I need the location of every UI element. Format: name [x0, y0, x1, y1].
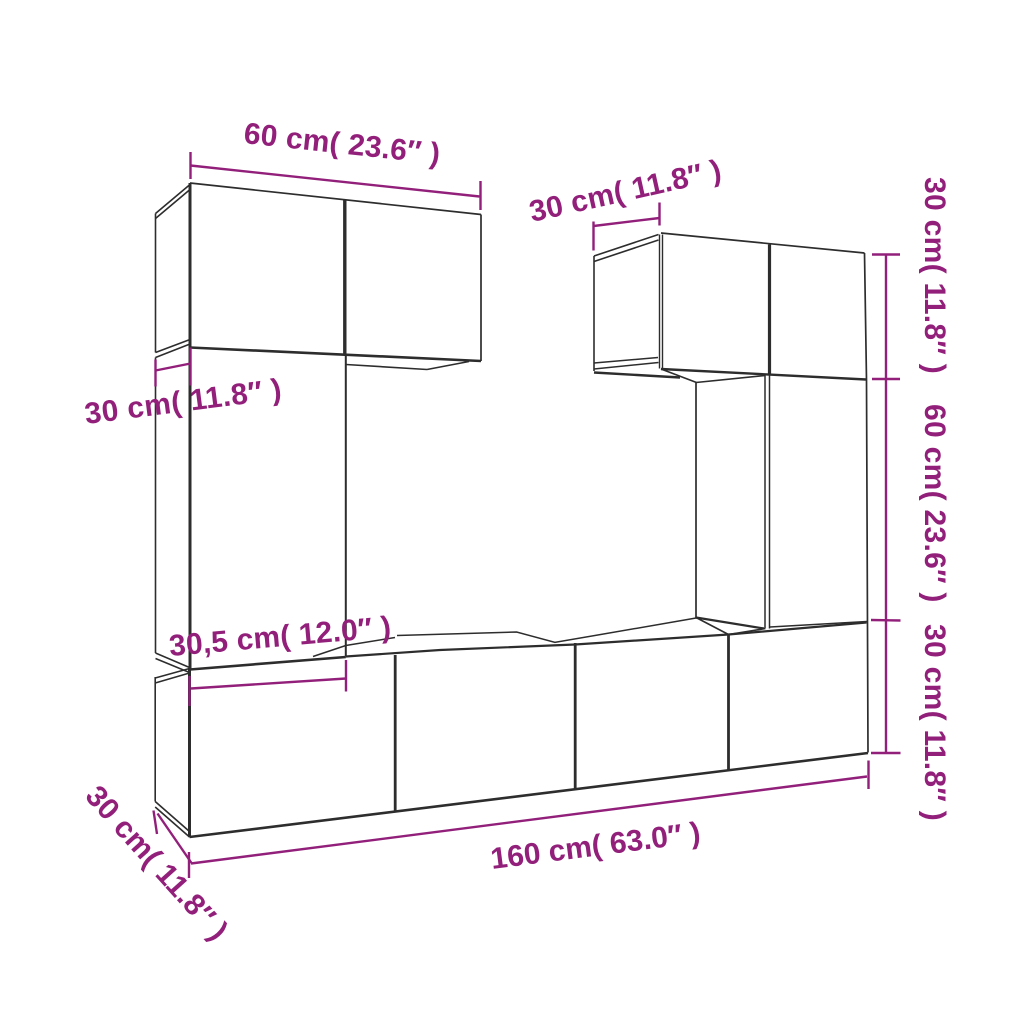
svg-text:30 cm( 11.8″ ): 30 cm( 11.8″ ) — [83, 373, 284, 431]
svg-text:30 cm( 11.8″ ): 30 cm( 11.8″ ) — [918, 177, 951, 374]
svg-text:60 cm( 23.6″ ): 60 cm( 23.6″ ) — [918, 404, 951, 603]
svg-text:30 cm( 11.8″ ): 30 cm( 11.8″ ) — [918, 624, 951, 821]
svg-text:160 cm( 63.0″ ): 160 cm( 63.0″ ) — [489, 816, 703, 876]
svg-text:60 cm( 23.6″ ): 60 cm( 23.6″ ) — [242, 117, 442, 171]
svg-text:30 cm( 11.8″ ): 30 cm( 11.8″ ) — [526, 154, 724, 229]
svg-text:30 cm( 11.8″ ): 30 cm( 11.8″ ) — [79, 780, 234, 947]
